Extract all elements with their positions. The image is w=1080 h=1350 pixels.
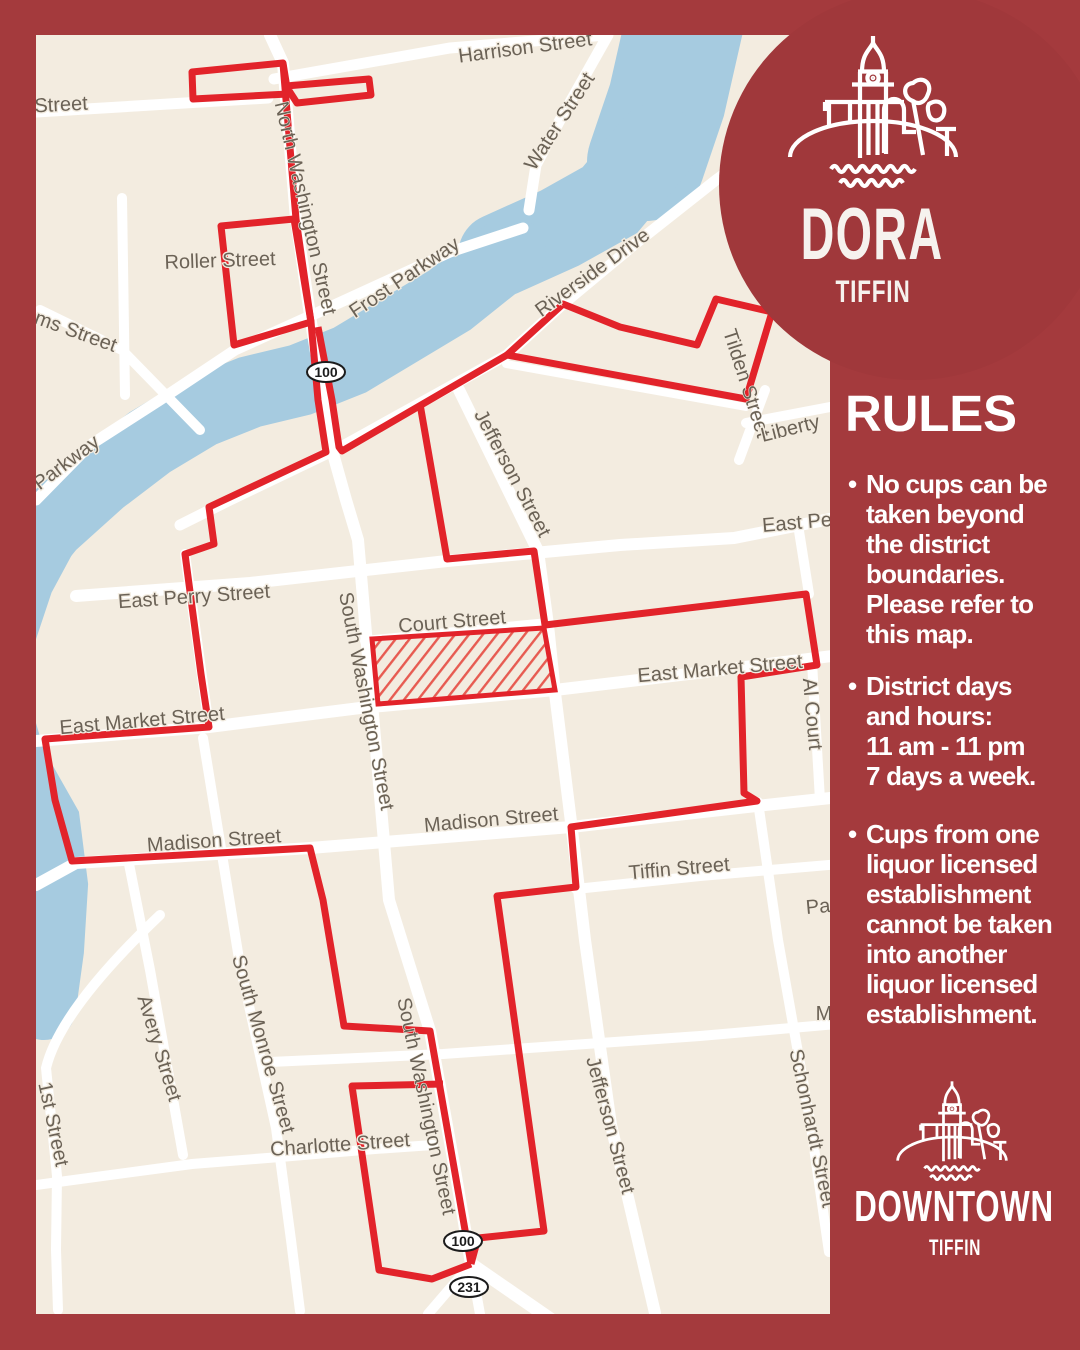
svg-text:231: 231	[457, 1279, 481, 1295]
svg-text:100: 100	[451, 1233, 475, 1249]
svg-text:M: M	[816, 1003, 833, 1025]
svg-text:100: 100	[314, 364, 338, 380]
svg-text:Street: Street	[34, 93, 89, 118]
svg-text:Pa: Pa	[805, 895, 832, 919]
svg-text:Roller Street: Roller Street	[164, 248, 276, 274]
